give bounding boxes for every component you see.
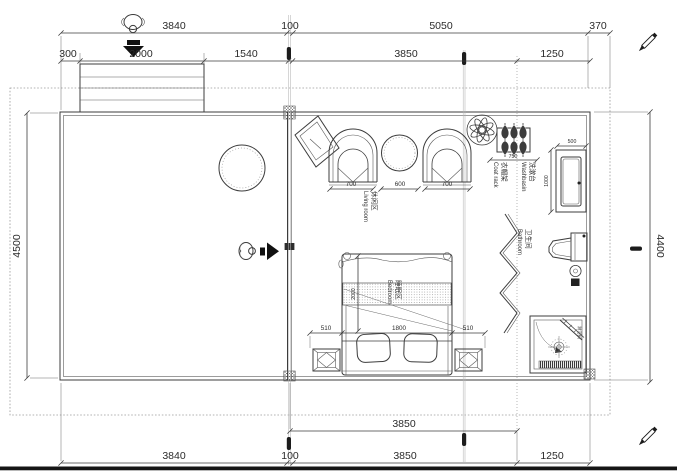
dim-left-4500: 4500: [11, 234, 23, 258]
label-bathroom-en: Bathroom: [516, 229, 522, 255]
nightstand-right: [455, 349, 482, 371]
axis-marker-icon: [287, 437, 291, 450]
dim-chair-left-700: 700: [346, 181, 357, 188]
wall-junction-hatch: [284, 371, 295, 381]
dim-top2-3850: 3850: [394, 48, 418, 60]
armchair-left: [329, 129, 377, 185]
axis-marker-icon: [630, 247, 642, 251]
dim-basin-500: 500: [568, 139, 577, 145]
dim-coatrack-750: 750: [509, 154, 518, 160]
dim-top-5050: 5050: [429, 20, 453, 32]
dim-bottom2-3850: 3850: [393, 450, 417, 462]
pillow-right: [404, 333, 438, 362]
dim-table-600: 600: [395, 181, 406, 188]
dim-bottom2-100: 100: [281, 450, 299, 462]
dim-top-3840: 3840: [162, 20, 186, 32]
floor-plan-canvas: 3840 100 5050 370 300 2000 1540 3850 125…: [0, 0, 677, 473]
ceiling-fan-icon: [467, 115, 497, 145]
dim-bottom-3850: 3850: [392, 418, 416, 430]
dim-bed-1800: 1800: [392, 325, 407, 332]
dim-right-4400: 4400: [654, 234, 666, 258]
armchair-right: [423, 129, 471, 185]
coat-rack: [497, 123, 530, 157]
shower-enclosure: [530, 316, 586, 373]
axis-marker-icon: [462, 433, 466, 446]
dim-chair-right-700: 700: [442, 181, 453, 188]
label-coatrack-zh: 衣帽架: [500, 162, 509, 182]
dim-top-370: 370: [589, 20, 607, 32]
dim-top2-2000: 2000: [129, 48, 153, 60]
dim-bottom2-1250: 1250: [540, 450, 564, 462]
pen-marker-icon: [638, 33, 658, 53]
toilet: [549, 233, 587, 286]
person-entering-right-icon: [239, 243, 279, 261]
axis-lines: [287, 15, 642, 465]
label-living-zh: 休闲区: [370, 191, 379, 211]
dim-bed-2000: 2000: [351, 288, 357, 300]
dim-bed-510-left: 510: [321, 325, 332, 332]
dim-top2-300: 300: [59, 48, 77, 60]
pillow-left: [356, 333, 390, 363]
shower-mat: [539, 361, 581, 368]
dim-bottom2-3840: 3840: [162, 450, 186, 462]
entry-stairs: [80, 64, 204, 112]
label-bedroom-zh: 睡眠区: [394, 280, 402, 300]
label-bathroom-zh: 卫生间: [524, 229, 533, 249]
dim-bed-510-right: 510: [463, 325, 474, 332]
round-table-deck: [219, 145, 265, 191]
pen-marker-icon: [638, 427, 658, 447]
wall-junction-hatch: [284, 106, 295, 119]
axis-marker-icon: [462, 52, 466, 65]
label-washbasin-zh: 洗漱台: [528, 162, 537, 182]
label-shower-zh: 淋浴间: [576, 326, 583, 339]
axis-marker-icon: [287, 47, 291, 60]
nightstand-left: [313, 349, 340, 371]
label-coatrack-en: Coat rack: [492, 162, 498, 189]
dimension-lines: [24, 30, 652, 465]
label-living-en: Living room: [362, 191, 368, 222]
label-bedroom-en: Bedroom: [386, 280, 392, 304]
dim-basin-1000: 1000: [544, 175, 550, 187]
round-side-table: [382, 135, 418, 171]
dim-top2-1250: 1250: [540, 48, 564, 60]
wall-door-block: [285, 243, 295, 250]
washbasin-counter: [556, 150, 586, 212]
dim-top-100: 100: [281, 20, 299, 32]
page-bottom-border: [0, 467, 677, 471]
label-washbasin-en: Washbasin: [520, 162, 526, 191]
dim-top2-1540: 1540: [234, 48, 258, 60]
